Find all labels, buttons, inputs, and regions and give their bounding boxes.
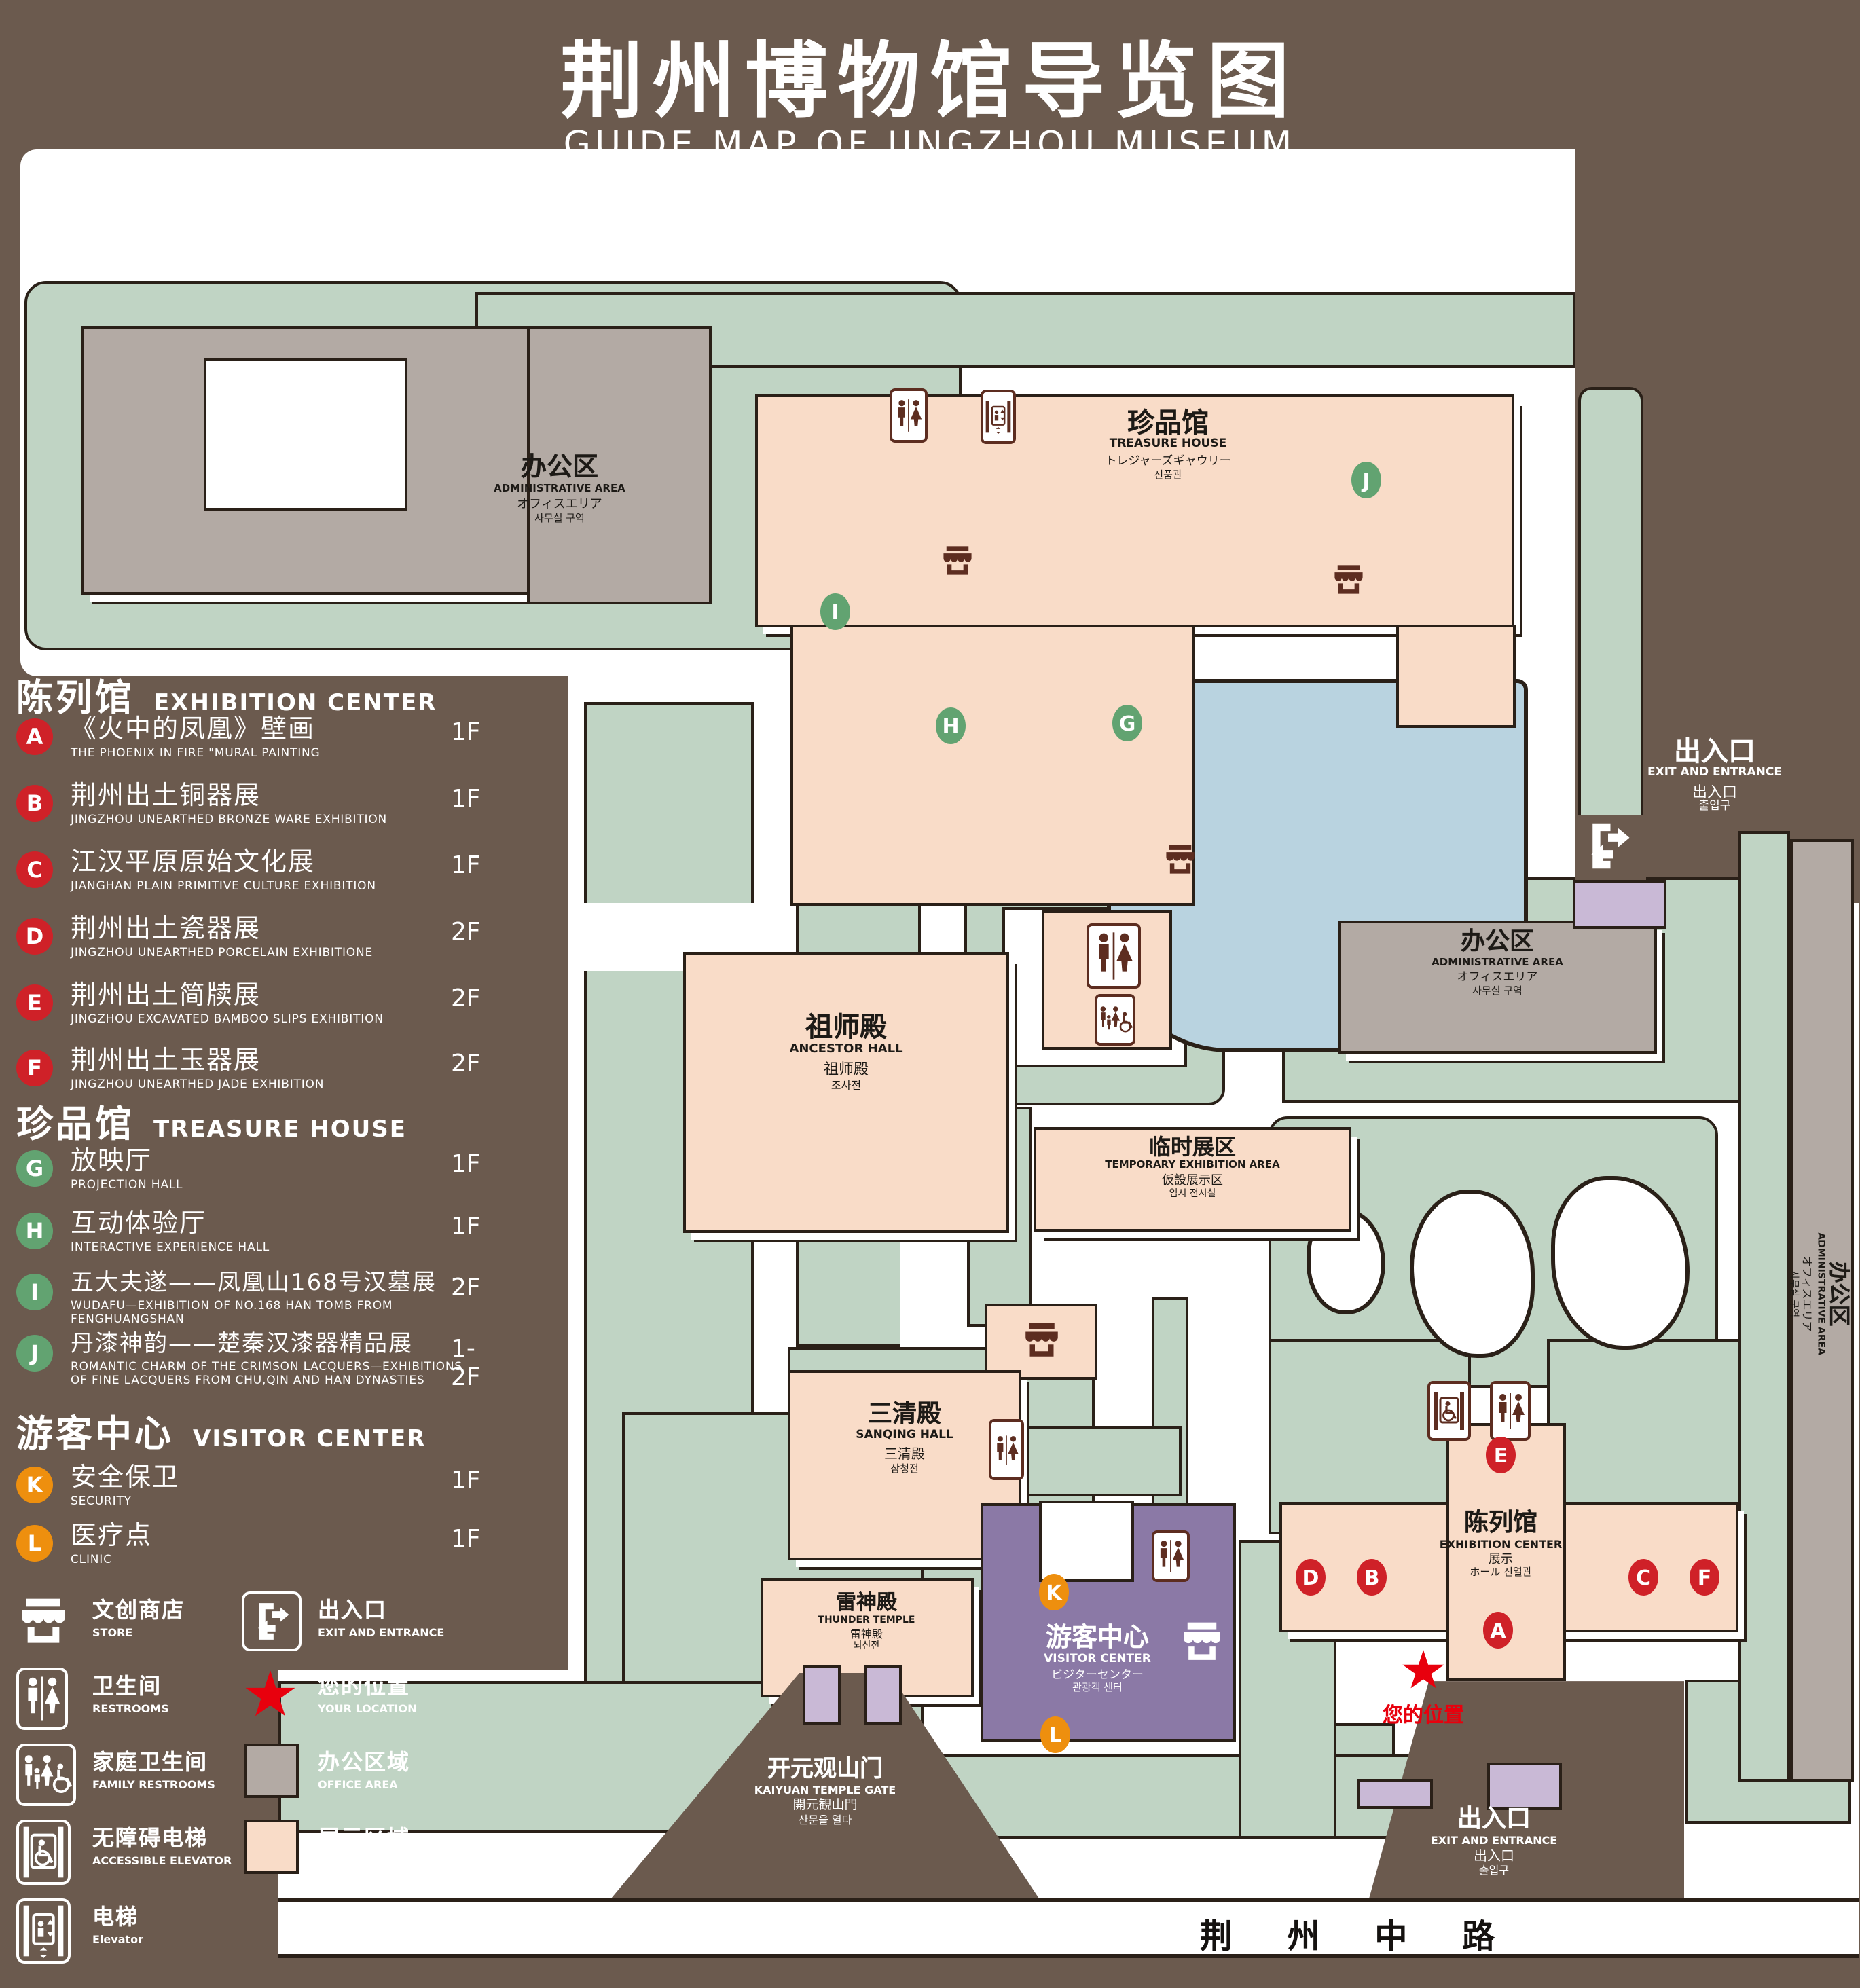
- legend-section-treasure: 珍品馆TREASURE HOUSE: [16, 1094, 407, 1147]
- sanqing-hall-label: 三清殿 SANQING HALL 三清殿 삼청전: [795, 1401, 1015, 1475]
- thunder-temple-label: 雷神殿 THUNDER TEMPLE 雷神殿 뇌신전: [763, 1591, 970, 1652]
- legend-item-E: E 荆州出土简牍展 JINGZHOU EXCAVATED BAMBOO SLIP…: [16, 982, 478, 1027]
- legend-symbol-office-area: 办公区域OFFICE AREA: [242, 1744, 410, 1791]
- treasure-house-wing-right: [1396, 625, 1516, 728]
- elevator-icon: [981, 390, 1016, 444]
- legend-symbol-exit: 出入口EXIT AND ENTRANCE: [242, 1591, 444, 1639]
- restrooms-icon: [1152, 1530, 1190, 1582]
- gate-pillar-right: [864, 1665, 902, 1725]
- store-icon: [1021, 1320, 1062, 1366]
- ancestor-hall-label: 祖师殿 ANCESTOR HALL 祖师殿 조사전: [693, 1012, 1000, 1092]
- gate-pillar-left: [803, 1665, 841, 1725]
- exit-top-label: 出入口 EXIT AND ENTRANCE 出入口 출입구: [1603, 736, 1827, 815]
- legend-symbol-accessible-elevator: 无障碍电梯ACCESSIBLE ELEVATOR: [16, 1820, 232, 1867]
- store-icon: [1331, 562, 1366, 603]
- office-right-label: 办公区 ADMINISTRATIVE AREA オフィスエリア 사무실 구역: [1338, 929, 1657, 997]
- map-marker-B: B: [1357, 1559, 1387, 1596]
- map-marker-L: L: [1040, 1716, 1070, 1753]
- office-vertical-label: 办公区 ADMINISTRATIVE AREA オフィスエリア 사무실 구역: [1789, 1090, 1850, 1498]
- office-area-swatch: [244, 1744, 299, 1798]
- legend-symbol-display-area: 展示区域DISPLAY AREA: [242, 1820, 410, 1867]
- legend-item-K: K 安全保卫 SECURITY 1F: [16, 1464, 478, 1509]
- green-strip-right-edge: [1738, 831, 1790, 1782]
- map-marker-H: H: [936, 707, 966, 744]
- exit-entrance-icon: [1580, 817, 1637, 875]
- visitor-center-notch: [1039, 1501, 1134, 1582]
- guide-map-stage: 荆州博物馆导览图 GUIDE MAP OF JINGZHOU MUSEUM 办公…: [0, 0, 1860, 1988]
- accessible-elevator-icon: [1427, 1381, 1471, 1441]
- exhibition-center-label: 陈列馆 EXHIBITION CENTER 展示 ホール 진열관: [1372, 1510, 1630, 1579]
- exit-entrance-icon: [242, 1591, 302, 1651]
- legend-section-exhibition: 陈列馆EXHIBITION CENTER: [16, 668, 437, 721]
- elevator-icon: [16, 1898, 71, 1964]
- treasure-house-label: 珍品馆 TREASURE HOUSE トレジャーズギャウリー 진품관: [1032, 407, 1304, 481]
- legend-item-H: H 互动体验厅 INTERACTIVE EXPERIENCE HALL 1F: [16, 1210, 478, 1255]
- ancestor-hall-building: [683, 952, 1009, 1233]
- exit-bottom-label: 出入口 EXIT AND ENTRANCE 出入口 출입구: [1399, 1806, 1589, 1877]
- family-restrooms-icon: [1095, 994, 1135, 1046]
- legend-symbol-family-restrooms: 家庭卫生间FAMILY RESTROOMS: [16, 1744, 215, 1791]
- map-marker-J: J: [1351, 462, 1381, 498]
- map-marker-E: E: [1486, 1437, 1516, 1473]
- exit-top-gate: [1573, 880, 1666, 929]
- road-label: 荆 州 中 路: [951, 1909, 1766, 1957]
- legend-symbol-your-location: 您的位置YOUR LOCATION: [242, 1668, 416, 1715]
- legend-item-B: B 荆州出土铜器展 JINGZHOU UNEARTHED BRONZE WARE…: [16, 782, 478, 828]
- legend-item-D: D 荆州出土瓷器展 JINGZHOU UNEARTHED PORCELAIN E…: [16, 915, 478, 961]
- map-marker-C: C: [1628, 1559, 1658, 1596]
- family-restrooms-icon: [16, 1744, 76, 1806]
- legend-symbol-restrooms: 卫生间RESTROOMS: [16, 1668, 169, 1715]
- exit-bottom-gate-right: [1487, 1763, 1562, 1810]
- map-marker-K: K: [1039, 1574, 1069, 1610]
- visitor-center-label: 游客中心 VISITOR CENTER ビジターセンター 관광객 센터: [996, 1624, 1199, 1695]
- legend-item-J: J 丹漆神韵——楚秦汉漆器精品展 ROMANTIC CHARM OF THE C…: [16, 1332, 478, 1389]
- page-title: 荆州博物馆导览图: [0, 14, 1859, 134]
- restrooms-icon: [16, 1668, 68, 1730]
- restrooms-icon: [1087, 923, 1141, 989]
- display-area-swatch: [244, 1820, 299, 1874]
- legend-section-visitor: 游客中心VISITOR CENTER: [16, 1404, 426, 1457]
- your-location-star: [244, 1670, 296, 1720]
- legend-item-G: G 放映厅 PROJECTION HALL 1F: [16, 1147, 478, 1193]
- legend-symbol-store: 文创商店STORE: [16, 1591, 185, 1639]
- map-marker-D: D: [1296, 1559, 1326, 1596]
- map-marker-I: I: [820, 593, 850, 630]
- temporary-exhibition-label: 临时展区 TEMPORARY EXHIBITION AREA 仮設展示区 임시 …: [1034, 1135, 1351, 1200]
- legend-item-I: I 五大夫遂——凤凰山168号汉墓展 WUDAFU—EXHIBITION OF …: [16, 1271, 478, 1328]
- store-icon: [1163, 842, 1198, 883]
- legend-item-F: F 荆州出土玉器展 JINGZHOU UNEARTHED JADE EXHIBI…: [16, 1047, 478, 1092]
- your-location-label: 您的位置: [1342, 1700, 1505, 1729]
- office-courtyard: [204, 358, 407, 511]
- map-marker-G: G: [1112, 705, 1142, 741]
- legend-symbol-elevator: 电梯Elevator: [16, 1898, 143, 1946]
- legend-item-A: A 《火中的凤凰》壁画 THE PHOENIX IN FIRE "MURAL P…: [16, 716, 478, 761]
- legend-item-C: C 江汉平原原始文化展 JIANGHAN PLAIN PRIMITIVE CUL…: [16, 849, 478, 894]
- exit-bottom-gate-left: [1357, 1779, 1433, 1809]
- treasure-house-wing-left: [790, 625, 1195, 906]
- restrooms-icon: [890, 388, 928, 443]
- office-topleft-label: 办公区 ADMINISTRATIVE AREA オフィスエリア 사무실 구역: [407, 454, 712, 525]
- kaiyuan-gate-label: 开元观山门 KAIYUAN TEMPLE GATE 開元観山門 산문을 열다: [679, 1757, 971, 1826]
- map-marker-F: F: [1690, 1559, 1719, 1596]
- store-icon: [16, 1594, 71, 1654]
- green-above-visitor: [1021, 1426, 1182, 1496]
- restrooms-icon: [1490, 1381, 1531, 1441]
- legend-item-L: L 医疗点 CLINIC 1F: [16, 1522, 478, 1568]
- store-icon: [940, 543, 975, 584]
- accessible-elevator-icon: [16, 1820, 71, 1885]
- map-marker-A: A: [1483, 1612, 1513, 1649]
